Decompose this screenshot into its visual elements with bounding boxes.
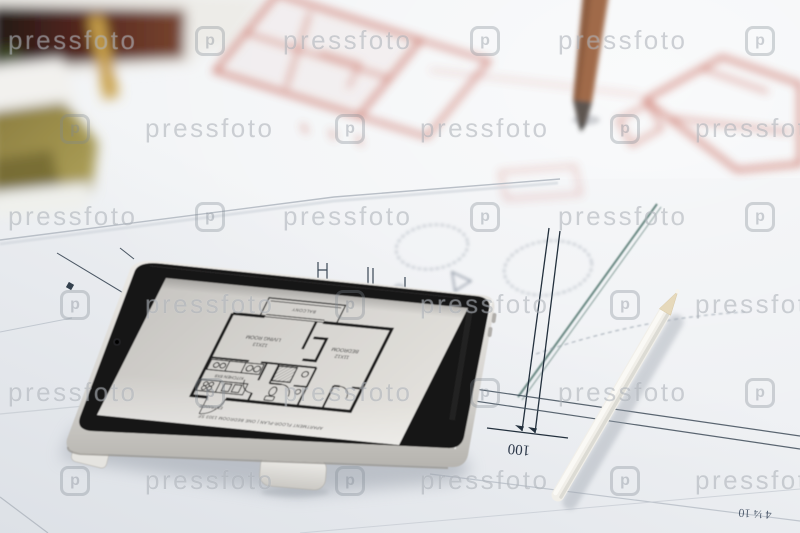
scene-canvas: 100 4 ¼ 10 — [0, 0, 800, 533]
blueprint-note: 4 ¼ 10 — [738, 506, 772, 522]
dimension-label: 100 — [507, 440, 531, 458]
front-camera-icon — [114, 339, 120, 345]
stock-photo-scene: 100 4 ¼ 10 — [0, 0, 800, 533]
